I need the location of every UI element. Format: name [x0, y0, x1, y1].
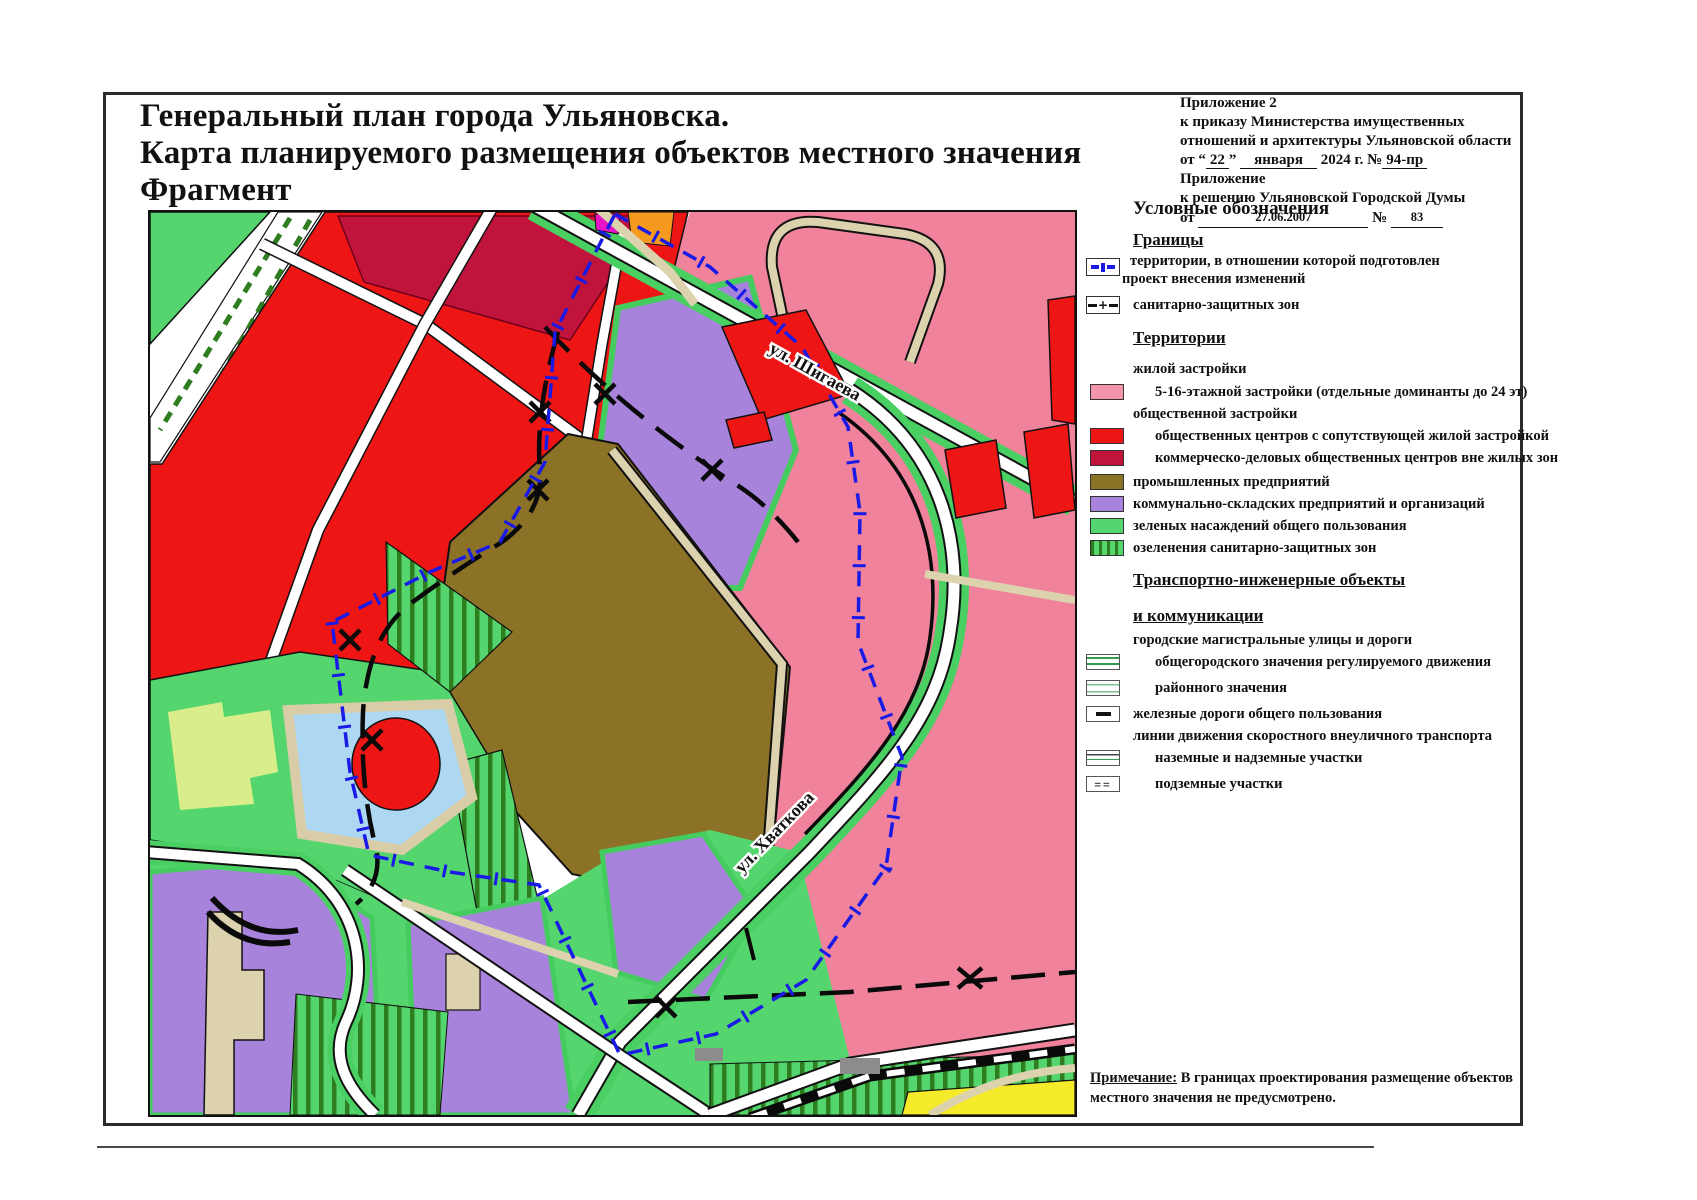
legend-item-label: 5-16-этажной застройки (отдельные домина… — [1155, 384, 1527, 401]
legend-item-label: общественных центров с сопутствующей жил… — [1155, 428, 1549, 445]
crimson-swatch — [1090, 450, 1124, 466]
red-swatch — [1090, 428, 1124, 444]
title-line-1: Генеральный план города Ульяновска. — [140, 98, 1180, 135]
legend-item-label: подземные участки — [1155, 776, 1283, 793]
footer-rule — [97, 1146, 1374, 1148]
note-label: Примечание: — [1090, 1070, 1177, 1086]
surface-section-swatch — [1086, 750, 1120, 766]
legend-group-residential: жилой застройки — [1133, 361, 1246, 378]
legend-item-label: коммерческо-деловых общественных центров… — [1155, 450, 1558, 467]
railway-swatch — [1086, 706, 1120, 722]
legend-item-label: промышленных предприятий — [1133, 474, 1330, 491]
gray-patch — [695, 1048, 723, 1061]
page-title: Генеральный план города Ульяновска. Карт… — [140, 98, 1180, 209]
page: { "title": { "line1": "Генеральный план … — [0, 0, 1697, 1200]
citywide-road-swatch — [1086, 654, 1120, 670]
legend-group-streets: городские магистральные улицы и дороги — [1133, 632, 1412, 649]
greenery-swatch — [1090, 518, 1124, 534]
underground-section-swatch: == — [1086, 776, 1120, 792]
industrial-swatch — [1090, 474, 1124, 490]
legend-item-label: железные дороги общего пользования — [1133, 706, 1382, 723]
map: ул. Шигаева ул. Хваткова — [148, 210, 1077, 1117]
legend-item-label: озеленения санитарно-защитных зон — [1133, 540, 1376, 557]
legend-header: Условные обозначения — [1133, 198, 1329, 220]
appendix-line1: Приложение 2 — [1180, 94, 1532, 113]
legend-item-label: коммунально-складских предприятий и орга… — [1133, 496, 1485, 513]
appendix-line3: отношений и архитектуры Ульяновской обла… — [1180, 132, 1532, 151]
sanitary-zone-border-icon: + — [1086, 296, 1120, 314]
appendix-line2: к приказу Министерства имущественных — [1180, 113, 1532, 132]
legend-item-label: зеленых насаждений общего пользования — [1133, 518, 1407, 535]
gray-patch — [840, 1058, 880, 1074]
legend-group-public: общественной застройки — [1133, 406, 1297, 423]
district-road-swatch — [1086, 680, 1120, 696]
zoning-map-svg: ул. Шигаева ул. Хваткова — [150, 212, 1075, 1115]
boundary-project-icon — [1086, 258, 1120, 276]
warehouse-swatch — [1090, 496, 1124, 512]
legend-item-label: наземные и надземные участки — [1155, 750, 1362, 767]
legend-item-label: общегородского значения регулируемого дв… — [1155, 654, 1491, 671]
legend-section-borders: Границы — [1133, 230, 1203, 250]
decision-number: 83 — [1391, 208, 1443, 228]
title-line-3: Фрагмент — [140, 172, 1180, 209]
legend-item-label: проект внесения изменений — [1122, 271, 1305, 288]
note: Примечание: В границах проектирования ра… — [1090, 1068, 1530, 1108]
legend-section-transport: Транспортно-инженерные объекты — [1133, 570, 1405, 590]
title-line-2: Карта планируемого размещения объектов м… — [140, 135, 1180, 172]
legend-section-territories: Территории — [1133, 328, 1226, 348]
appendix-line4: от “22” января 2024 г. №94-пр — [1180, 151, 1532, 170]
legend-section-transport2: и коммуникации — [1133, 606, 1263, 626]
pink-swatch — [1090, 384, 1124, 400]
legend-item-label: санитарно-защитных зон — [1133, 297, 1299, 314]
legend-item-label: районного значения — [1155, 680, 1287, 697]
appendix-line5: Приложение — [1180, 170, 1532, 189]
legend-group-rapid-transit: линии движения скоростного внеуличного т… — [1133, 728, 1492, 745]
sanitary-greenery-swatch — [1090, 540, 1124, 556]
legend-item-label: территории, в отношении которой подготов… — [1130, 253, 1440, 270]
